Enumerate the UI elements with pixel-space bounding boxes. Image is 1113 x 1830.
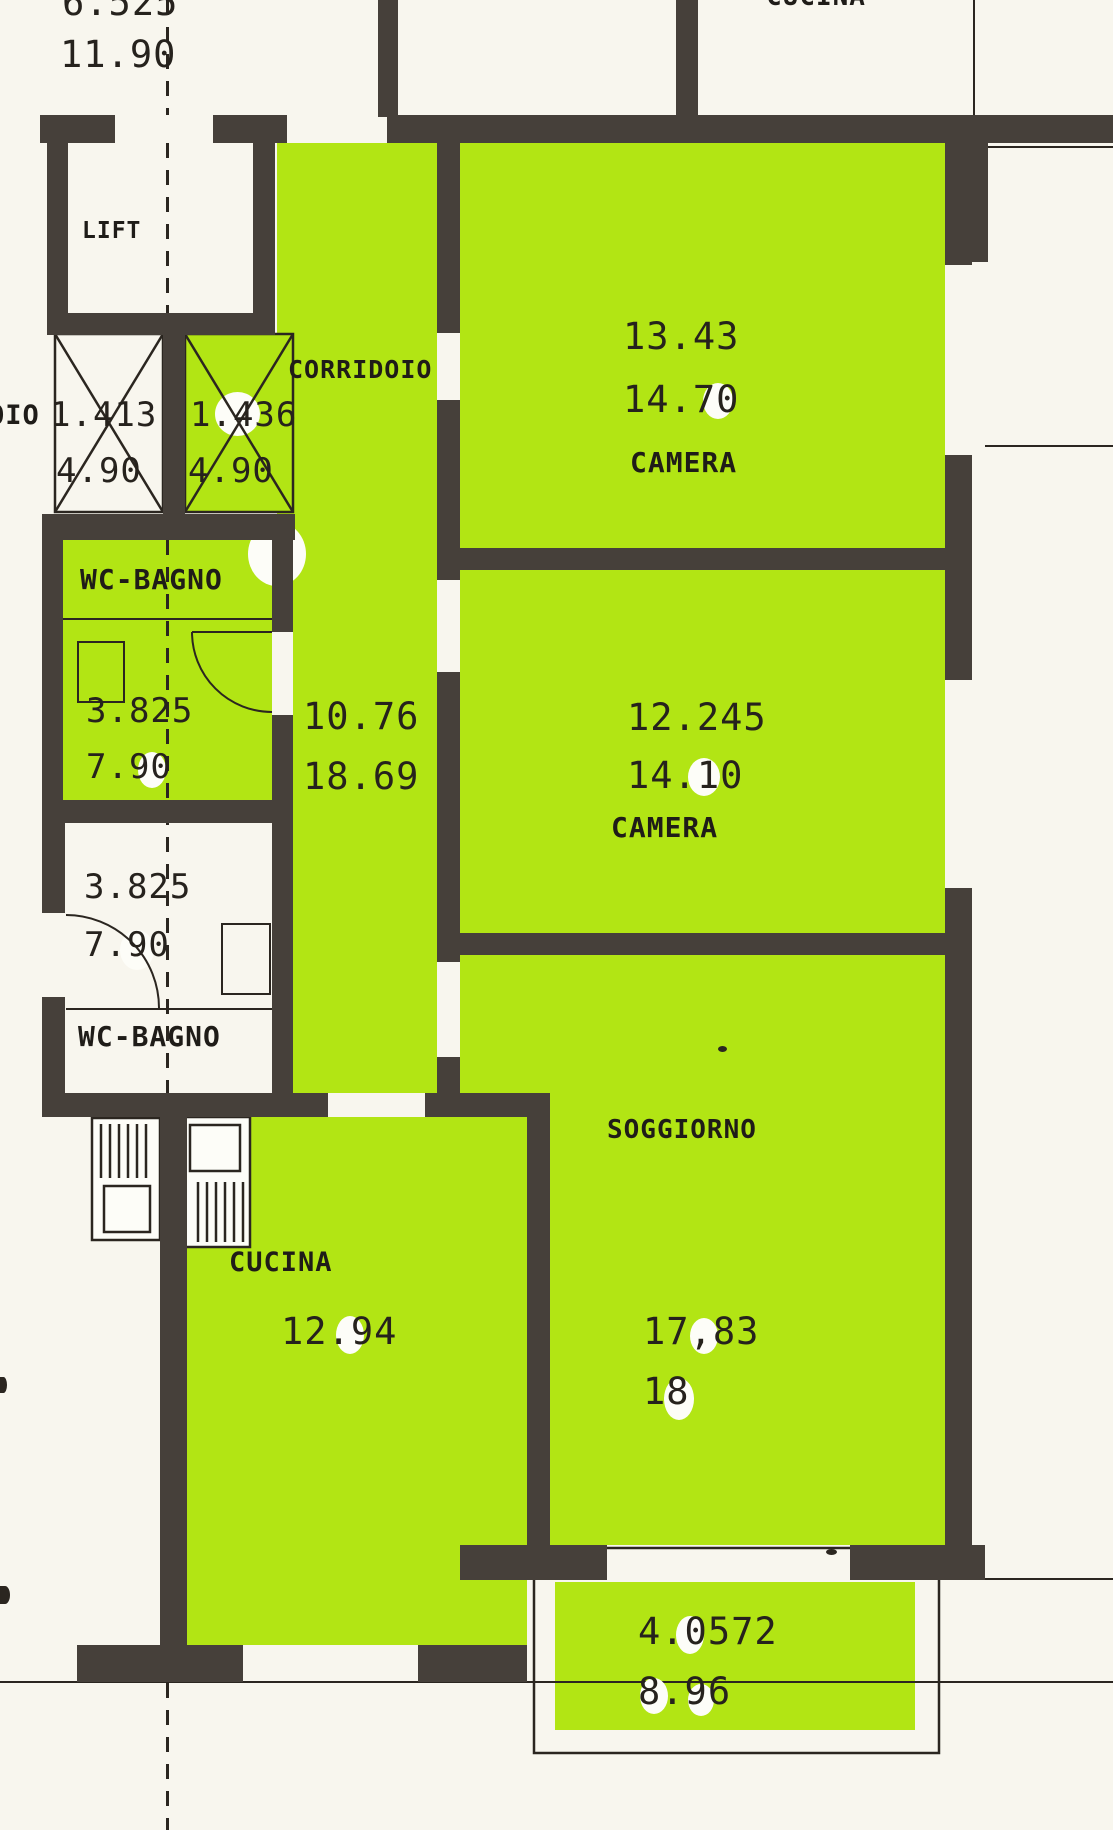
wall-segment: [945, 455, 972, 680]
room-label-soggiorno: SOGGIORNO: [607, 1117, 757, 1143]
wc-upper-dim-1: 3.825: [86, 694, 193, 728]
camera2-dim-1: 12.245: [627, 699, 767, 736]
wall-segment: [213, 115, 287, 143]
wall-segment: [460, 933, 972, 955]
wall-segment: [527, 1095, 550, 1580]
edge-artifact: [0, 1377, 7, 1393]
wall-segment: [945, 143, 972, 265]
wall-segment: [437, 143, 460, 333]
room-label-corridoio: CORRIDOIO: [288, 357, 432, 382]
room-label-camera-2: CAMERA: [611, 814, 718, 842]
partial-label-cucina-top: CUCINA: [766, 0, 866, 10]
camera2-dim-2: 14.10: [627, 757, 743, 794]
shaft-left-dim-1: 1.413: [50, 398, 157, 432]
wall-segment: [47, 313, 275, 335]
wall-segment: [42, 540, 63, 823]
shaft-right-dim-2: 4.90: [188, 454, 274, 488]
wall-segment: [460, 548, 972, 570]
wall-segment: [272, 540, 293, 632]
room-label-camera-1: CAMERA: [630, 449, 737, 477]
balcone-dim-1: 4.0572: [638, 1613, 778, 1650]
dim-top-2: 11.90: [60, 36, 176, 73]
wall-segment: [850, 1545, 985, 1580]
shaft-right-dim-1: 1.436: [190, 398, 297, 432]
wall-segment: [42, 800, 293, 823]
corridoio-dim-2: 18.69: [303, 758, 419, 795]
wc-lower-dim-1: 3.825: [84, 870, 191, 904]
floor-plan: 6.525 11.90 CUCINA LIFT OIO 1.413 4.90 1…: [0, 0, 1113, 1830]
wall-segment: [437, 1057, 460, 1095]
wall-segment: [163, 332, 185, 514]
wall-segment: [42, 997, 65, 1095]
wall-segment: [378, 0, 398, 117]
kitchen-fixture-left: [92, 1118, 160, 1240]
door-arc: [192, 632, 272, 712]
corridoio-dim-1: 10.76: [303, 698, 419, 735]
wall-segment: [387, 115, 1113, 143]
kitchen-fixture-right: [183, 1117, 250, 1247]
wall-segment: [47, 143, 68, 315]
room-label-cucina: CUCINA: [229, 1249, 333, 1276]
wall-segment: [40, 115, 115, 143]
wc-lower-dim-2: 7.90: [84, 928, 170, 962]
wc-upper-dim-2: 7.90: [86, 750, 172, 784]
wall-segment: [437, 672, 460, 962]
room-label-wc-bagno-upper: WC-BAGNO: [80, 566, 223, 594]
soggiorno-dim-1: 17,83: [643, 1313, 759, 1350]
wall-segment: [418, 1645, 527, 1682]
cucina-dim-1: 12.94: [281, 1313, 397, 1350]
dim-top-1: 6.525: [62, 0, 178, 21]
balcone-dim-2: 8.96: [638, 1673, 731, 1710]
camera1-dim-2: 14.70: [623, 381, 739, 418]
wall-segment: [676, 0, 698, 117]
plan-dot: [826, 1549, 837, 1555]
plan-dot: [718, 1046, 727, 1052]
wall-segment: [77, 1645, 243, 1682]
wall-segment: [253, 143, 275, 334]
wall-segment: [42, 514, 295, 540]
wall-segment: [160, 1113, 187, 1647]
wall-segment: [42, 823, 65, 913]
edge-artifact: [0, 1586, 10, 1604]
wall-segment: [460, 1545, 607, 1580]
wall-segment: [272, 823, 293, 1095]
room-label-lift: LIFT: [82, 220, 141, 243]
wall-segment: [945, 888, 972, 1545]
room-label-wc-bagno-lower: WC-BAGNO: [78, 1023, 221, 1051]
camera1-dim-1: 13.43: [623, 318, 739, 355]
partial-label-left-edge: OIO: [0, 402, 40, 429]
soggiorno-dim-2: 18: [643, 1373, 690, 1410]
shaft-left-dim-2: 4.90: [56, 454, 142, 488]
wall-segment: [437, 400, 460, 580]
